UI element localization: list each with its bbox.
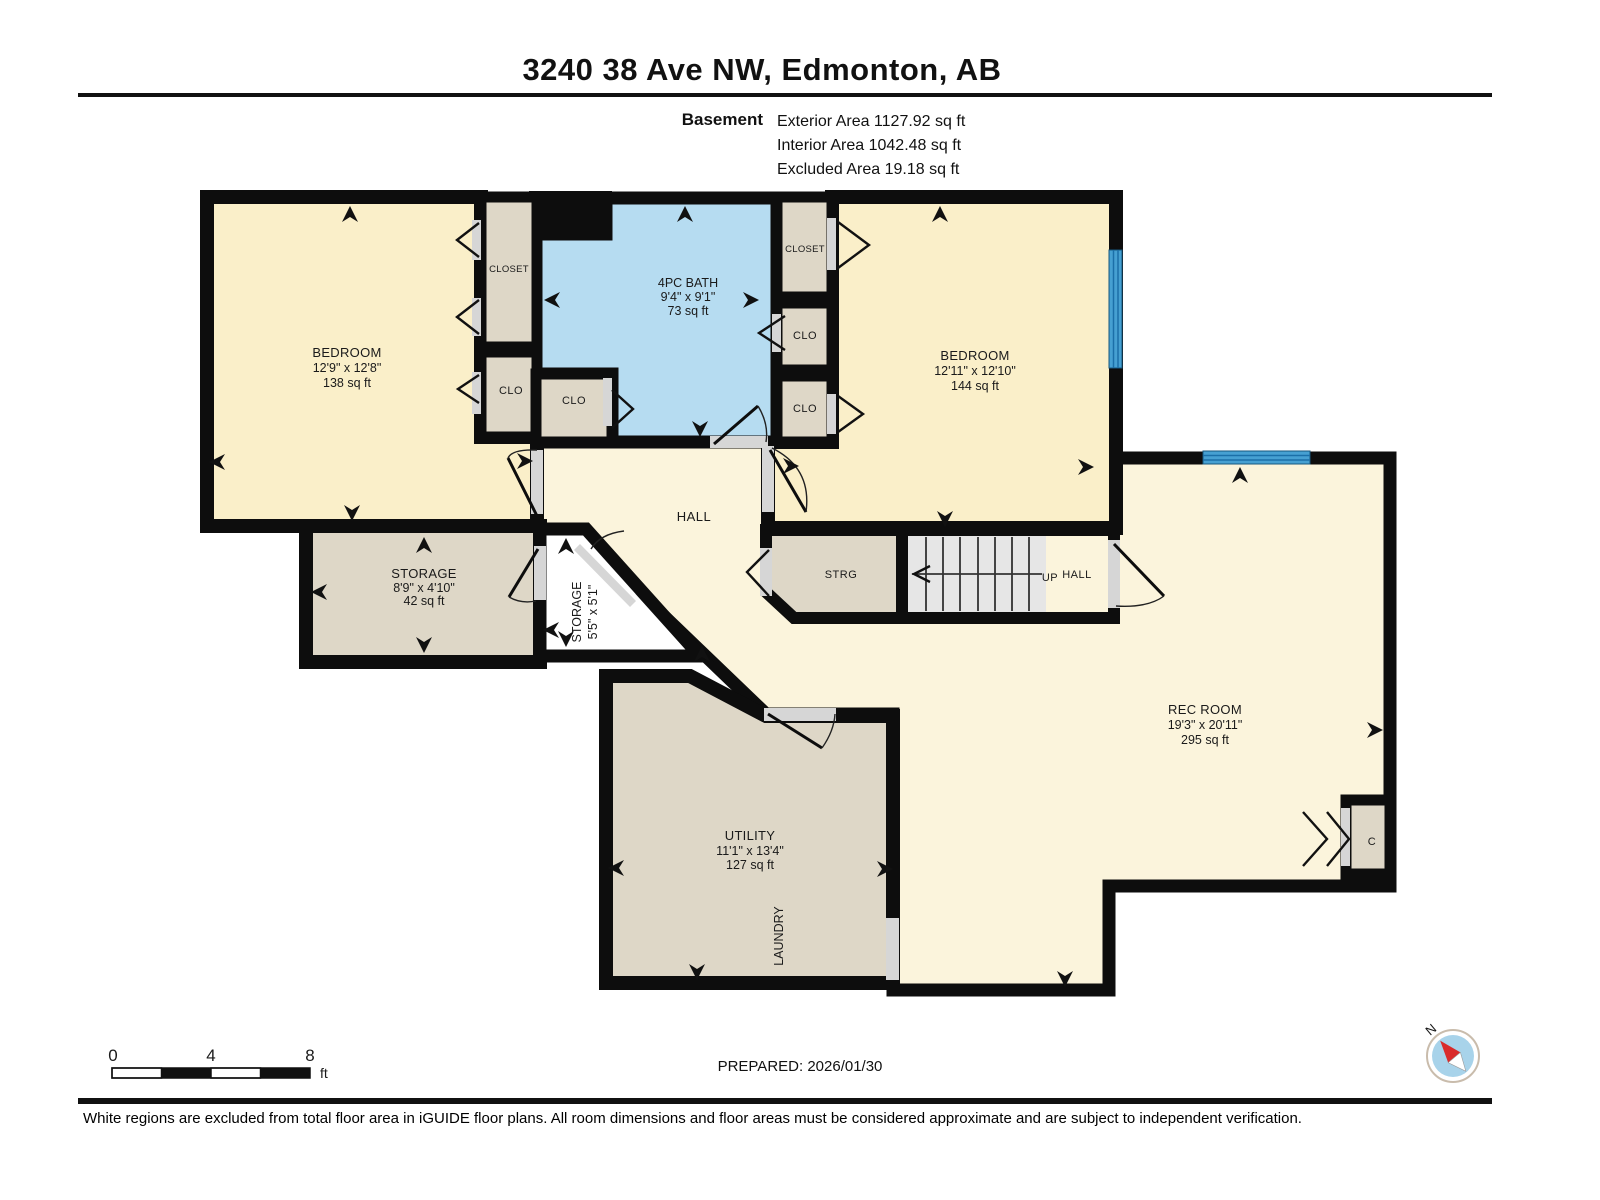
floorplan-page: { "header": { "title": "3240 38 Ave NW, … (0, 0, 1600, 1200)
bath-dims: 9'4" x 9'1" (661, 290, 716, 304)
bath-area: 73 sq ft (668, 304, 710, 318)
utility-dims: 11'1" x 13'4" (716, 844, 784, 858)
clo-right-bot-jamb (827, 394, 836, 434)
stairs-up-label: UP (1042, 572, 1058, 584)
storage-small-name: STORAGE (570, 582, 584, 643)
utility-name: UTILITY (725, 828, 776, 843)
bedroom-right-name: BEDROOM (940, 348, 1009, 363)
clo-bath-jamb (603, 378, 612, 426)
bedroom-left-dims: 12'9" x 12'8" (313, 361, 382, 375)
storage-area: 42 sq ft (404, 594, 446, 608)
bath-name: 4PC BATH (658, 276, 718, 290)
rec-room-dims: 19'3" x 20'11" (1168, 718, 1243, 732)
rec-room-area: 295 sq ft (1181, 733, 1229, 747)
clo-right-bot-label: CLO (793, 403, 817, 415)
clo-bath-region (536, 374, 612, 442)
laundry-label: LAUNDRY (772, 906, 786, 966)
disclaimer-text: White regions are excluded from total fl… (83, 1110, 1503, 1127)
prepared-date: PREPARED: 2026/01/30 (0, 1058, 1600, 1075)
closet-right-jamb (827, 218, 836, 270)
window-rec-room (1203, 451, 1310, 464)
rec-room-name: REC ROOM (1168, 702, 1242, 717)
closet-rec-label: C (1368, 836, 1376, 848)
window-bedroom-right (1109, 250, 1122, 368)
storage-name: STORAGE (391, 566, 456, 581)
storage-small-dims: 5'5" x 5'1" (586, 585, 600, 640)
strg-label: STRG (825, 569, 858, 581)
bedroom-left-area: 138 sq ft (323, 376, 371, 390)
utility-rec-opening (886, 918, 899, 980)
hall-landing-label: HALL (1062, 569, 1092, 581)
closet-right-label: CLOSET (785, 244, 825, 255)
bedroom-left-name: BEDROOM (312, 345, 381, 360)
bedroom-right-area: 144 sq ft (951, 379, 999, 393)
clo-right-mid-label: CLO (793, 330, 817, 342)
footer-divider (78, 1098, 1492, 1104)
closet-left-label: CLOSET (489, 264, 529, 275)
clo-left-label: CLO (499, 385, 523, 397)
clo-bath-label: CLO (562, 395, 586, 407)
floorplan-drawing: BEDROOM 12'9" x 12'8" 138 sq ft 4PC BATH… (0, 0, 1600, 1200)
bath-door-opening (710, 436, 768, 448)
hall-label: HALL (677, 509, 712, 524)
rooms-layer (207, 191, 1390, 990)
utility-area: 127 sq ft (726, 858, 774, 872)
windows-layer (1109, 250, 1310, 464)
bedroom-right-dims: 12'11" x 12'10" (934, 364, 1016, 378)
storage-dims: 8'9" x 4'10" (393, 581, 455, 595)
